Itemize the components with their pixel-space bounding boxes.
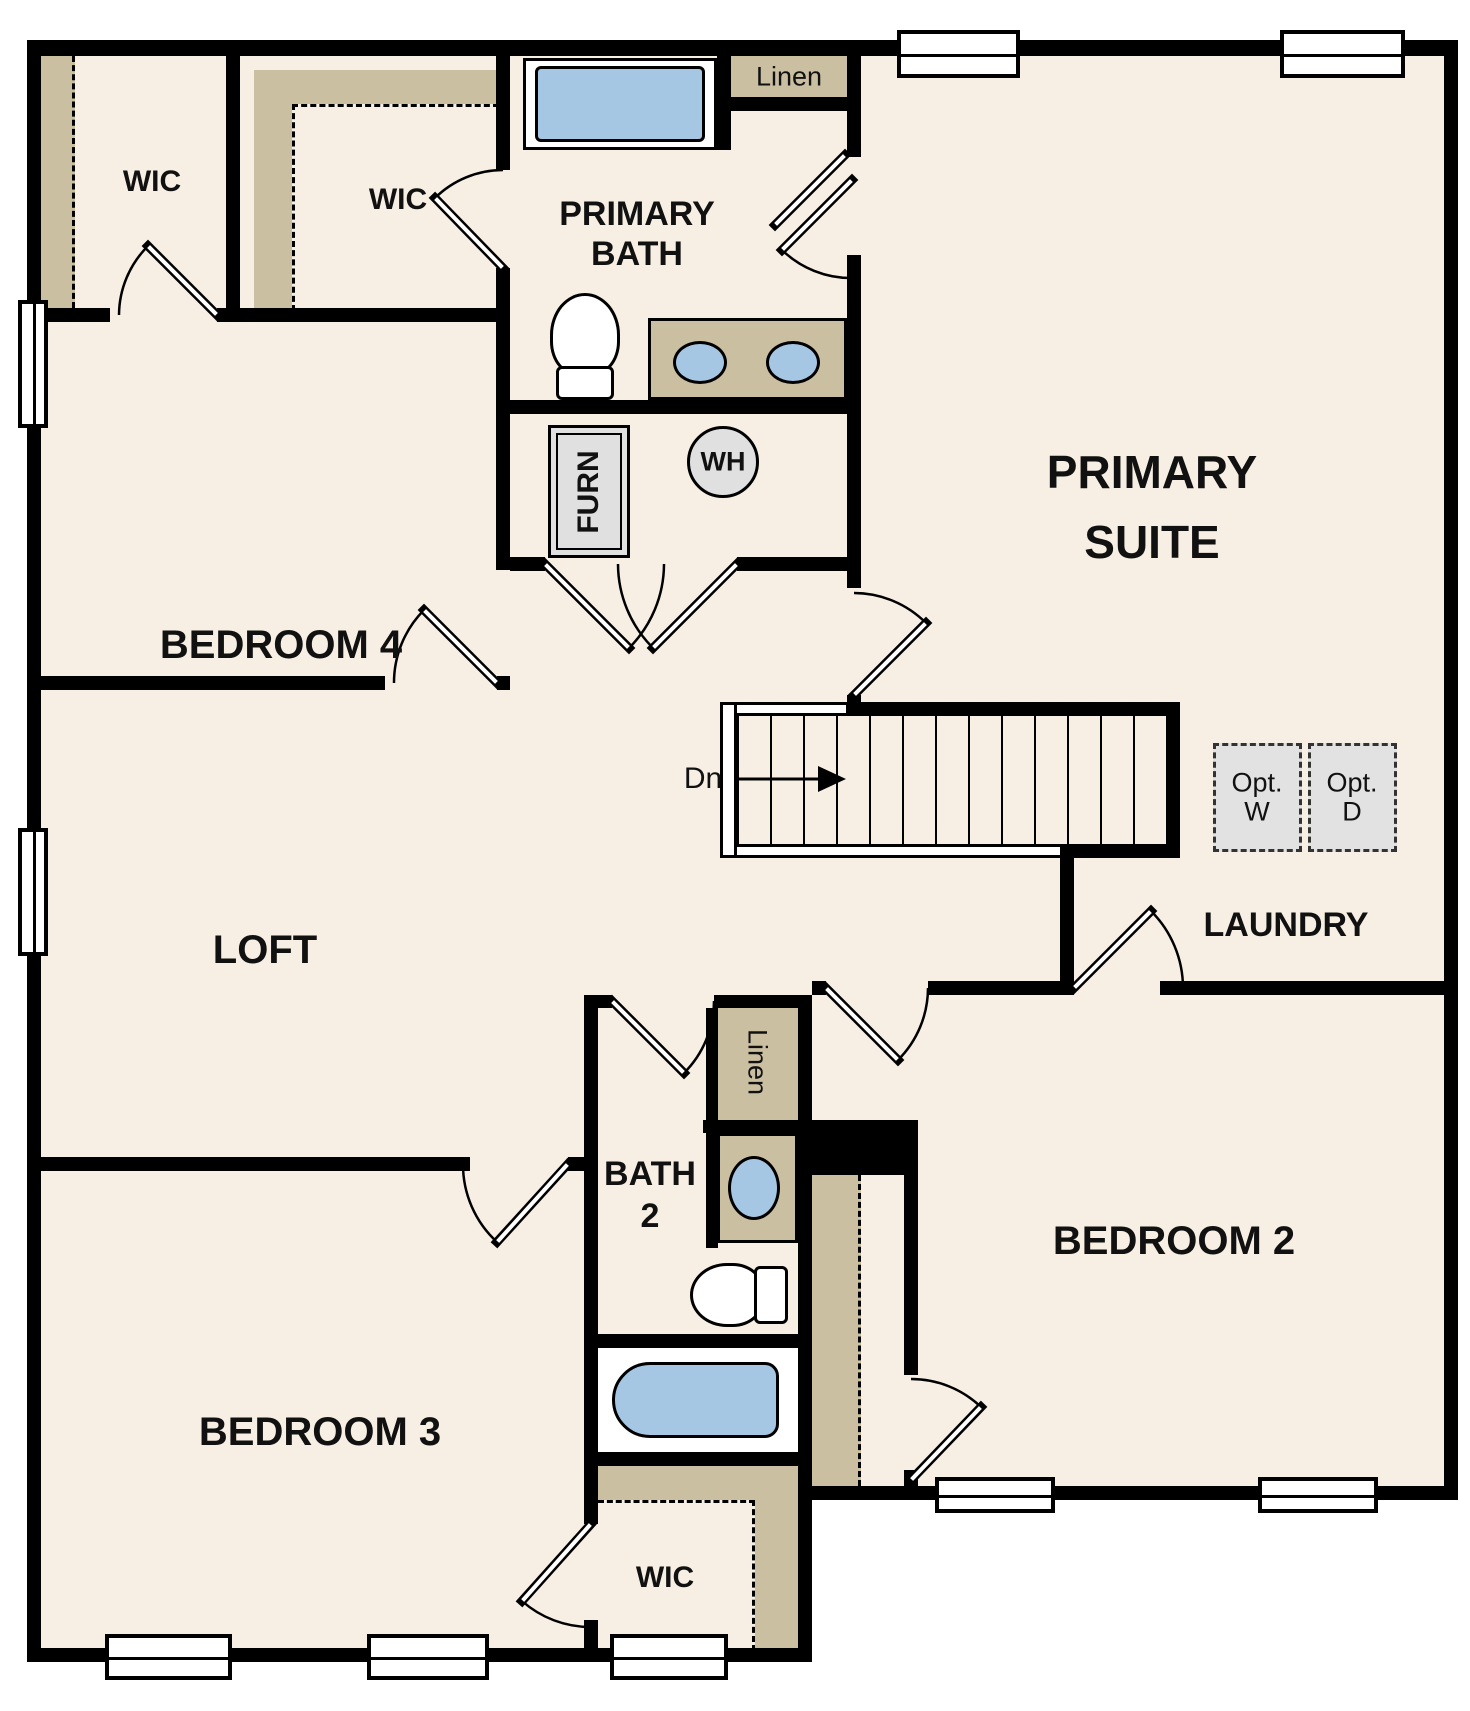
wall-bedroom4-bottom-a <box>27 676 385 690</box>
room-label-wic3: WIC <box>636 1563 694 1593</box>
window-bedroom2-bottom-1 <box>935 1477 1055 1513</box>
wall-stair-bottom-right <box>1063 844 1180 858</box>
wall-stair-top <box>847 702 1180 716</box>
equipment-label-optd-line2: D <box>1342 799 1362 826</box>
primary-sink-right <box>766 341 820 384</box>
wall-wic1-right <box>226 56 240 322</box>
room-label-primary-suite-line1: PRIMARY <box>1047 449 1257 495</box>
bath2-toilet-tank <box>754 1266 788 1324</box>
room-label-primary-suite-line2: SUITE <box>1084 519 1219 565</box>
equipment-label-wh: WH <box>701 449 746 476</box>
wall-loft-bedroom3-divider-stub <box>568 1157 598 1171</box>
primary-tub <box>535 66 705 142</box>
window-bedroom2-bottom-2 <box>1258 1477 1378 1513</box>
wall-bath-bottom <box>510 400 861 414</box>
wall-suite-left-a <box>847 40 861 157</box>
wall-tubroom-bottom <box>598 1452 798 1466</box>
room-label-primary-bath-line1: PRIMARY <box>559 197 715 231</box>
wall-bedroom2-top-c <box>1160 981 1444 995</box>
wall-linen2-bottom <box>703 1120 798 1133</box>
stair-label-dn: Dn <box>684 764 722 794</box>
room-label-loft: LOFT <box>213 930 317 970</box>
wall-bath2-bedroom2-divider <box>798 995 812 1486</box>
wall-bedroom2-closet-right-a <box>904 1175 918 1375</box>
room-label-wic2: WIC <box>369 185 427 215</box>
wall-exterior-top <box>27 40 1458 56</box>
window-bedroom3-bottom-2 <box>367 1634 489 1680</box>
stair-rail-top <box>723 702 849 716</box>
wall-tubroom-top <box>598 1334 798 1348</box>
wall-bath2-top-a <box>598 995 612 1008</box>
wall-linen1-bottom <box>731 97 861 111</box>
bedroom2-closet-shelf <box>812 1175 861 1486</box>
wall-hall-bottom-b <box>737 557 861 571</box>
wall-suite-left-b <box>847 255 861 588</box>
wall-connector-right-of-wic3 <box>798 1486 812 1662</box>
bedroom2-chase <box>812 1120 918 1175</box>
floor-plan: WIC WIC PRIMARY BATH Linen PRIMARY SUITE… <box>0 0 1470 1711</box>
wall-wic-bottom-b <box>217 308 510 322</box>
window-suite-top-2 <box>1280 30 1405 78</box>
room-label-bath2-line1: BATH <box>604 1157 696 1191</box>
room-label-bedroom2: BEDROOM 2 <box>1053 1221 1295 1261</box>
primary-toilet-bowl <box>550 293 620 377</box>
primary-sink-left <box>673 341 727 384</box>
wall-bath2-left-b <box>584 1620 598 1648</box>
wall-bedroom4-bottom-b <box>497 676 510 690</box>
bath2-sink <box>728 1156 780 1220</box>
wall-bath-left-a <box>496 56 510 170</box>
wall-bedroom2-top-b <box>928 981 1074 995</box>
room-label-primary-bath-line2: BATH <box>591 237 683 271</box>
stair-rail-left <box>720 702 737 858</box>
window-wic3-bottom <box>610 1634 728 1680</box>
room-label-laundry: LAUNDRY <box>1204 908 1369 942</box>
primary-toilet-tank <box>556 366 614 400</box>
wall-stair-right <box>1166 702 1180 858</box>
bath2-toilet-bowl <box>690 1263 764 1327</box>
wall-hall-bottom-a <box>510 557 545 571</box>
wall-tub-right <box>717 56 731 150</box>
wall-exterior-right <box>1444 40 1458 1500</box>
equipment-label-furn: FURN <box>574 450 604 533</box>
window-loft-left <box>18 828 48 956</box>
stair-treads <box>737 716 1166 844</box>
room-label-bedroom4: BEDROOM 4 <box>160 625 402 665</box>
equipment-label-optd-line1: Opt. <box>1326 770 1377 797</box>
equipment-label-optw-line2: W <box>1244 799 1269 826</box>
wall-loft-bedroom3-divider <box>27 1157 470 1171</box>
equipment-label-optw-line1: Opt. <box>1231 770 1282 797</box>
closet-label-linen1: Linen <box>756 64 822 91</box>
stair-rail-bottom <box>723 844 1063 858</box>
room-label-bath2-line2: 2 <box>641 1199 660 1233</box>
window-bedroom3-bottom-1 <box>105 1634 232 1680</box>
wall-bath-left-b <box>496 268 510 570</box>
wall-bedroom2-top-a <box>812 981 826 995</box>
wall-stub-below-stairs <box>1060 858 1074 988</box>
wall-bedroom2-closet-right-b <box>904 1470 918 1486</box>
wall-bath2-left-a <box>584 995 598 1524</box>
window-bedroom4-left <box>18 300 48 428</box>
room-label-bedroom3: BEDROOM 3 <box>199 1412 441 1452</box>
window-suite-top-1 <box>897 30 1020 78</box>
wic1-shelf <box>41 56 75 308</box>
closet-label-linen2: Linen <box>744 1029 771 1095</box>
bath2-tub <box>612 1362 779 1438</box>
room-label-wic1: WIC <box>123 167 181 197</box>
